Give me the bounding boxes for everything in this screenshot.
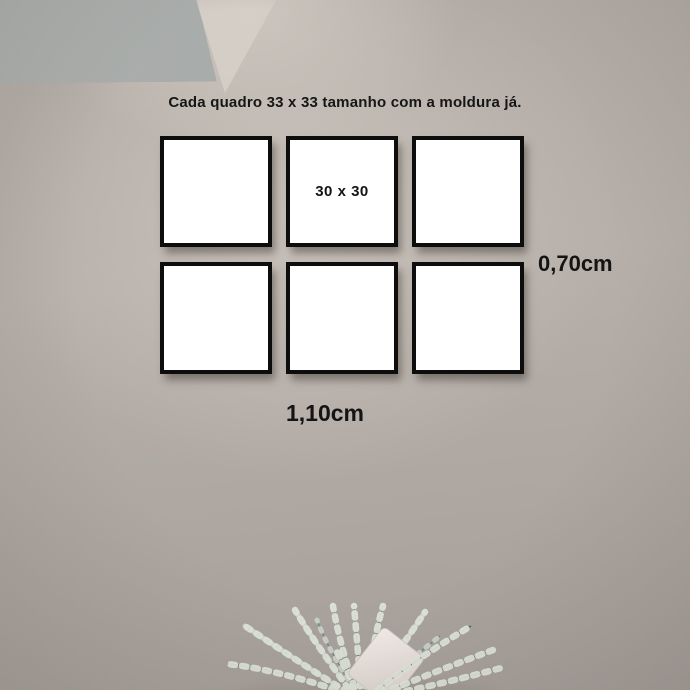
frame-size-label: 30 x 30: [315, 183, 369, 200]
picture-frame: [412, 262, 524, 374]
width-dimension-label: 1,10cm: [286, 400, 364, 427]
picture-frame: 30 x 30: [286, 136, 398, 247]
height-dimension-label: 0,70cm: [538, 251, 613, 277]
product-mockup-image: Cada quadro 33 x 33 tamanho com a moldur…: [0, 0, 690, 690]
picture-frame: [412, 136, 524, 247]
title-caption: Cada quadro 33 x 33 tamanho com a moldur…: [0, 94, 690, 111]
picture-frame: [286, 262, 398, 374]
picture-frame: [160, 136, 272, 247]
frames-grid: 30 x 30: [160, 136, 524, 374]
pussy-willow-plant: [205, 602, 505, 690]
picture-frame: [160, 262, 272, 374]
